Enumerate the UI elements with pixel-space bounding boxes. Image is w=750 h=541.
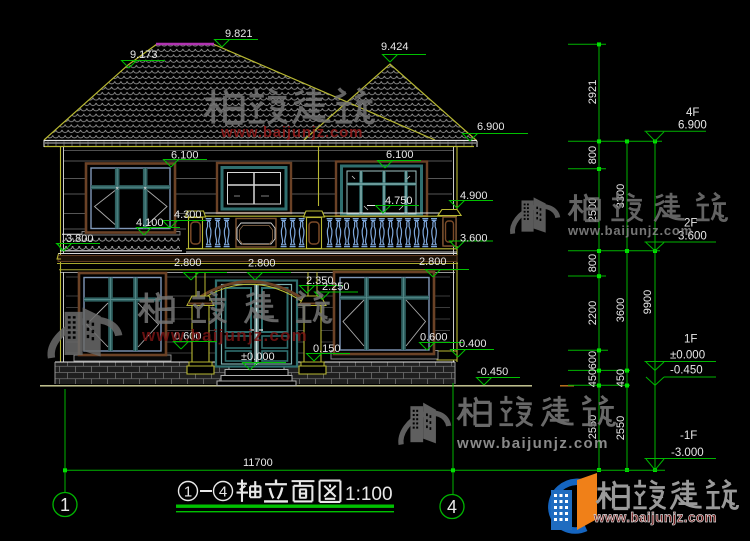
svg-text:±0.000: ±0.000 bbox=[241, 351, 275, 363]
svg-text:www.baijunjz.com: www.baijunjz.com bbox=[593, 510, 717, 525]
svg-text:2550: 2550 bbox=[615, 416, 627, 440]
svg-text:1: 1 bbox=[60, 495, 70, 515]
svg-text:0.150: 0.150 bbox=[313, 343, 341, 355]
svg-text:0.600: 0.600 bbox=[420, 332, 448, 344]
svg-text:9.173: 9.173 bbox=[130, 49, 158, 61]
svg-text:6.100: 6.100 bbox=[386, 149, 414, 161]
svg-text:4.900: 4.900 bbox=[460, 190, 488, 202]
svg-text:0.400: 0.400 bbox=[459, 338, 487, 350]
svg-text:1:100: 1:100 bbox=[345, 484, 393, 505]
svg-text:9.424: 9.424 bbox=[381, 41, 409, 53]
svg-text:2200: 2200 bbox=[587, 301, 599, 325]
svg-text:±0.000: ±0.000 bbox=[670, 350, 705, 362]
svg-text:800: 800 bbox=[587, 146, 599, 164]
svg-text:2.250: 2.250 bbox=[322, 281, 350, 293]
svg-text:1: 1 bbox=[184, 484, 192, 501]
svg-text:2.800: 2.800 bbox=[174, 257, 202, 269]
svg-text:450: 450 bbox=[587, 369, 599, 387]
svg-text:-0.450: -0.450 bbox=[477, 366, 508, 378]
svg-text:800: 800 bbox=[587, 254, 599, 272]
svg-text:2921: 2921 bbox=[587, 80, 599, 104]
svg-text:9900: 9900 bbox=[642, 290, 654, 314]
svg-text:600: 600 bbox=[587, 351, 599, 369]
svg-text:www.baijunjz.com: www.baijunjz.com bbox=[141, 326, 308, 345]
svg-text:6.900: 6.900 bbox=[678, 120, 707, 132]
svg-text:-1F: -1F bbox=[680, 430, 697, 442]
svg-text:-3.000: -3.000 bbox=[671, 447, 704, 459]
svg-text:9.821: 9.821 bbox=[225, 28, 253, 40]
svg-text:11700: 11700 bbox=[243, 457, 273, 469]
svg-text:www.baijunjz.com: www.baijunjz.com bbox=[567, 223, 693, 238]
svg-text:3600: 3600 bbox=[615, 298, 627, 322]
svg-text:4.300: 4.300 bbox=[174, 209, 202, 221]
svg-text:3.600: 3.600 bbox=[460, 233, 488, 245]
svg-text:-0.450: -0.450 bbox=[670, 365, 703, 377]
svg-text:3.800: 3.800 bbox=[66, 233, 94, 245]
svg-text:2.800: 2.800 bbox=[248, 258, 276, 270]
svg-text:4F: 4F bbox=[686, 107, 699, 119]
svg-text:4: 4 bbox=[219, 484, 227, 501]
svg-text:450: 450 bbox=[615, 369, 627, 387]
svg-text:4.100: 4.100 bbox=[136, 217, 164, 229]
svg-text:4: 4 bbox=[447, 497, 457, 517]
svg-text:4.750: 4.750 bbox=[385, 195, 413, 207]
svg-text:6.900: 6.900 bbox=[477, 121, 505, 133]
svg-text:1F: 1F bbox=[684, 334, 697, 346]
svg-text:6.100: 6.100 bbox=[171, 150, 199, 162]
svg-text:www.baijunjz.com: www.baijunjz.com bbox=[456, 435, 609, 452]
svg-text:www.baijunjz.com: www.baijunjz.com bbox=[220, 124, 363, 141]
svg-text:2.800: 2.800 bbox=[419, 256, 447, 268]
